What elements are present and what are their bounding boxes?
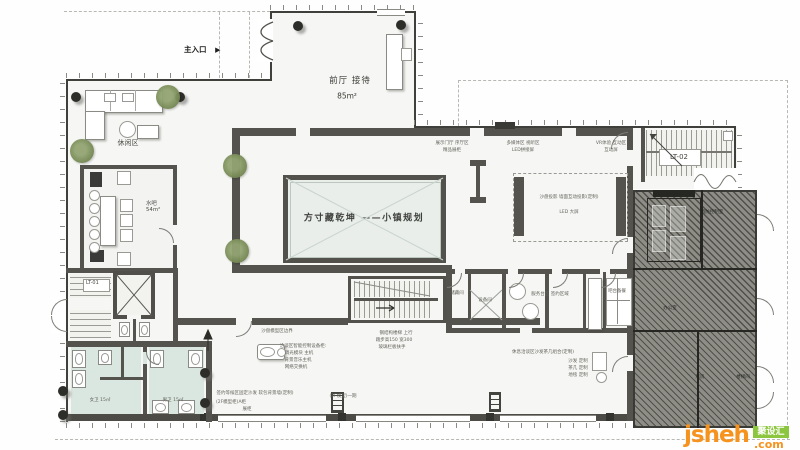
tree-icon bbox=[70, 139, 94, 163]
round-table bbox=[522, 303, 539, 320]
reception-desk bbox=[386, 34, 403, 90]
projection-zone bbox=[513, 173, 628, 242]
cabinet bbox=[117, 252, 131, 266]
exterior-wall bbox=[414, 11, 416, 128]
wall-screen bbox=[495, 122, 515, 129]
cabinet bbox=[117, 171, 131, 185]
fixture-ghost bbox=[670, 206, 686, 232]
bar-table bbox=[100, 196, 116, 246]
interior-wall bbox=[232, 265, 448, 273]
stool bbox=[120, 214, 133, 227]
led-screen-bar bbox=[514, 177, 524, 236]
column-marker bbox=[200, 398, 210, 408]
wall-opening bbox=[562, 128, 576, 136]
pantry-grid-line bbox=[617, 278, 618, 324]
column-marker bbox=[293, 21, 303, 31]
fixture bbox=[119, 322, 130, 337]
main-entrance-text: 主入口 bbox=[184, 45, 207, 54]
service-block-wall bbox=[697, 330, 699, 428]
exterior-wall bbox=[270, 11, 272, 81]
interior-wall bbox=[583, 272, 586, 330]
wall-ticks bbox=[60, 80, 65, 422]
led-screen-bar bbox=[616, 177, 626, 236]
interior-wall bbox=[206, 341, 212, 422]
column-wrap bbox=[470, 197, 486, 203]
stall-partition bbox=[100, 377, 143, 380]
arrow-right-icon: ▶ bbox=[215, 46, 220, 54]
front-hall-area-label: 85m² bbox=[337, 92, 357, 101]
wall-ticks bbox=[66, 423, 635, 428]
bench bbox=[137, 125, 159, 139]
sofa bbox=[85, 111, 105, 140]
site-boundary-line bbox=[55, 439, 790, 440]
sofa-divider bbox=[135, 90, 136, 111]
service-block-wall bbox=[633, 330, 757, 332]
tree-icon bbox=[225, 239, 249, 263]
chair bbox=[89, 216, 100, 227]
interior-wall bbox=[545, 272, 549, 330]
stair-1-label: LT-01 bbox=[86, 280, 99, 286]
window-band bbox=[500, 415, 596, 422]
door-arc bbox=[757, 298, 774, 315]
column-square bbox=[338, 413, 346, 421]
door-arc bbox=[757, 392, 774, 409]
exterior-wall bbox=[734, 126, 736, 188]
interior-wall bbox=[173, 268, 178, 346]
main-entrance-label: 主入口 ▶ bbox=[184, 44, 221, 55]
stair-landing bbox=[70, 298, 111, 310]
interior-wall bbox=[133, 319, 136, 341]
sink bbox=[98, 350, 112, 365]
fixture bbox=[139, 322, 150, 337]
column-marker bbox=[58, 410, 68, 420]
fixture-ghost bbox=[652, 230, 666, 252]
wall-opening bbox=[520, 328, 532, 333]
watermark-brand: jsheh bbox=[684, 422, 749, 448]
interior-wall bbox=[252, 318, 348, 325]
toilet bbox=[188, 350, 203, 368]
chair bbox=[89, 203, 100, 214]
equipment-oval bbox=[260, 347, 275, 357]
wall-ticks bbox=[418, 11, 423, 128]
service-block-wall bbox=[701, 190, 703, 268]
window-band bbox=[356, 415, 470, 422]
watermark-tld: .com bbox=[754, 438, 784, 450]
coffee-table bbox=[104, 93, 116, 102]
elevator-shaft bbox=[113, 271, 155, 319]
stall-partition bbox=[121, 347, 124, 377]
mullion-column bbox=[331, 392, 344, 413]
window-band bbox=[218, 415, 326, 422]
stool bbox=[120, 199, 133, 212]
column-square bbox=[606, 413, 614, 421]
column-square bbox=[486, 413, 494, 421]
stair-treads bbox=[354, 301, 430, 318]
fixture-ghost bbox=[670, 236, 686, 260]
chair bbox=[89, 190, 100, 201]
wall-ticks bbox=[414, 120, 736, 125]
site-boundary-line bbox=[64, 11, 270, 12]
reception-desk-return bbox=[401, 48, 412, 61]
exterior-wall bbox=[66, 80, 68, 422]
stair-rail bbox=[354, 298, 438, 301]
wall-ticks bbox=[737, 126, 742, 188]
watermark-badge: 聚设汇 bbox=[753, 426, 789, 438]
floor-plan-canvas: 方寸藏乾坤 ——小镇规划 bbox=[0, 0, 800, 450]
watermark: jsheh 聚设汇 .com bbox=[684, 422, 796, 450]
chair bbox=[89, 229, 100, 240]
column-wrap bbox=[476, 166, 480, 197]
sink bbox=[178, 400, 195, 414]
column-marker bbox=[396, 20, 406, 30]
wall-ticks bbox=[66, 73, 272, 78]
interior-wall bbox=[641, 128, 645, 182]
chair bbox=[89, 242, 100, 253]
mullion-column bbox=[489, 392, 501, 412]
side-table bbox=[592, 352, 607, 371]
interior-wall bbox=[468, 272, 471, 322]
toilet bbox=[72, 370, 86, 388]
entrance-path-line bbox=[249, 12, 250, 78]
wall-opening bbox=[470, 128, 484, 136]
bar-room-area: 54m² bbox=[146, 207, 160, 213]
service-block-lintel bbox=[653, 190, 695, 197]
stair-treads bbox=[354, 281, 430, 297]
door-arc bbox=[757, 214, 774, 231]
front-hall-top-door-gap bbox=[377, 9, 405, 16]
wall-opening bbox=[296, 128, 310, 136]
toilet bbox=[72, 350, 86, 368]
interior-wall bbox=[502, 272, 506, 330]
site-boundary-line bbox=[458, 80, 788, 81]
stair-2-label: LT-02 bbox=[670, 153, 688, 161]
shaft-box bbox=[723, 131, 733, 141]
site-boundary-line bbox=[787, 80, 788, 440]
exterior-wall bbox=[66, 79, 272, 81]
tree-icon bbox=[156, 85, 180, 109]
column-marker bbox=[200, 368, 210, 378]
leisure-area-label: 休闲区 bbox=[118, 138, 139, 148]
service-counter bbox=[588, 278, 602, 330]
equipment-knob bbox=[277, 348, 286, 357]
lounge-chair bbox=[596, 372, 607, 383]
service-block-wall bbox=[633, 268, 757, 270]
pantry-grid-line bbox=[606, 300, 630, 301]
column-marker bbox=[58, 386, 68, 396]
coffee-table bbox=[122, 93, 134, 102]
round-table bbox=[119, 121, 136, 138]
bar-cabinet bbox=[90, 172, 102, 187]
tree-icon bbox=[223, 154, 247, 178]
sink bbox=[152, 400, 169, 414]
pantry-counter bbox=[606, 278, 632, 326]
stool bbox=[120, 229, 133, 242]
wall-opening bbox=[627, 150, 633, 166]
bar-room-label: 水吧 54m² bbox=[146, 199, 160, 213]
interior-wall bbox=[176, 318, 236, 325]
fixture-ghost bbox=[652, 205, 666, 227]
front-hall-label: 前厅 接待 bbox=[329, 74, 371, 86]
model-caption: 方寸藏乾坤 ——小镇规划 bbox=[304, 211, 424, 224]
door-arc bbox=[757, 366, 774, 383]
column-marker bbox=[71, 92, 81, 102]
